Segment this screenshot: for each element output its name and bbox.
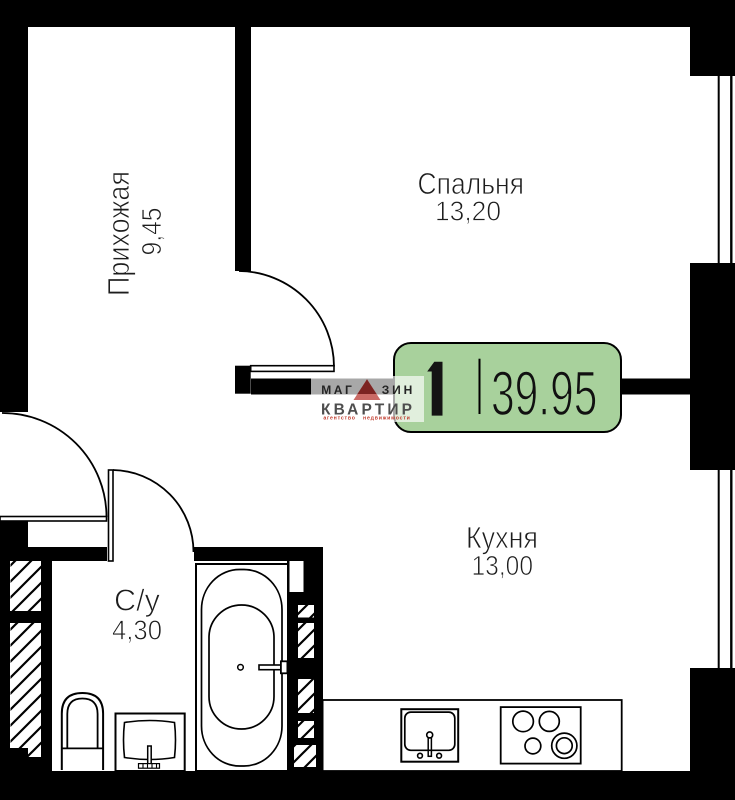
svg-text:ЗИН: ЗИН bbox=[382, 383, 413, 397]
svg-text:Прихожая: Прихожая bbox=[101, 171, 136, 296]
svg-text:39.95: 39.95 bbox=[491, 359, 597, 429]
svg-text:агентство недвижимости: агентство недвижимости bbox=[323, 416, 410, 422]
svg-text:С/у: С/у bbox=[114, 583, 160, 618]
svg-text:13,20: 13,20 bbox=[435, 196, 501, 227]
svg-text:МАГ: МАГ bbox=[321, 383, 352, 397]
svg-text:4,30: 4,30 bbox=[112, 615, 162, 646]
svg-text:9,45: 9,45 bbox=[136, 208, 167, 256]
svg-text:13,00: 13,00 bbox=[472, 550, 534, 581]
